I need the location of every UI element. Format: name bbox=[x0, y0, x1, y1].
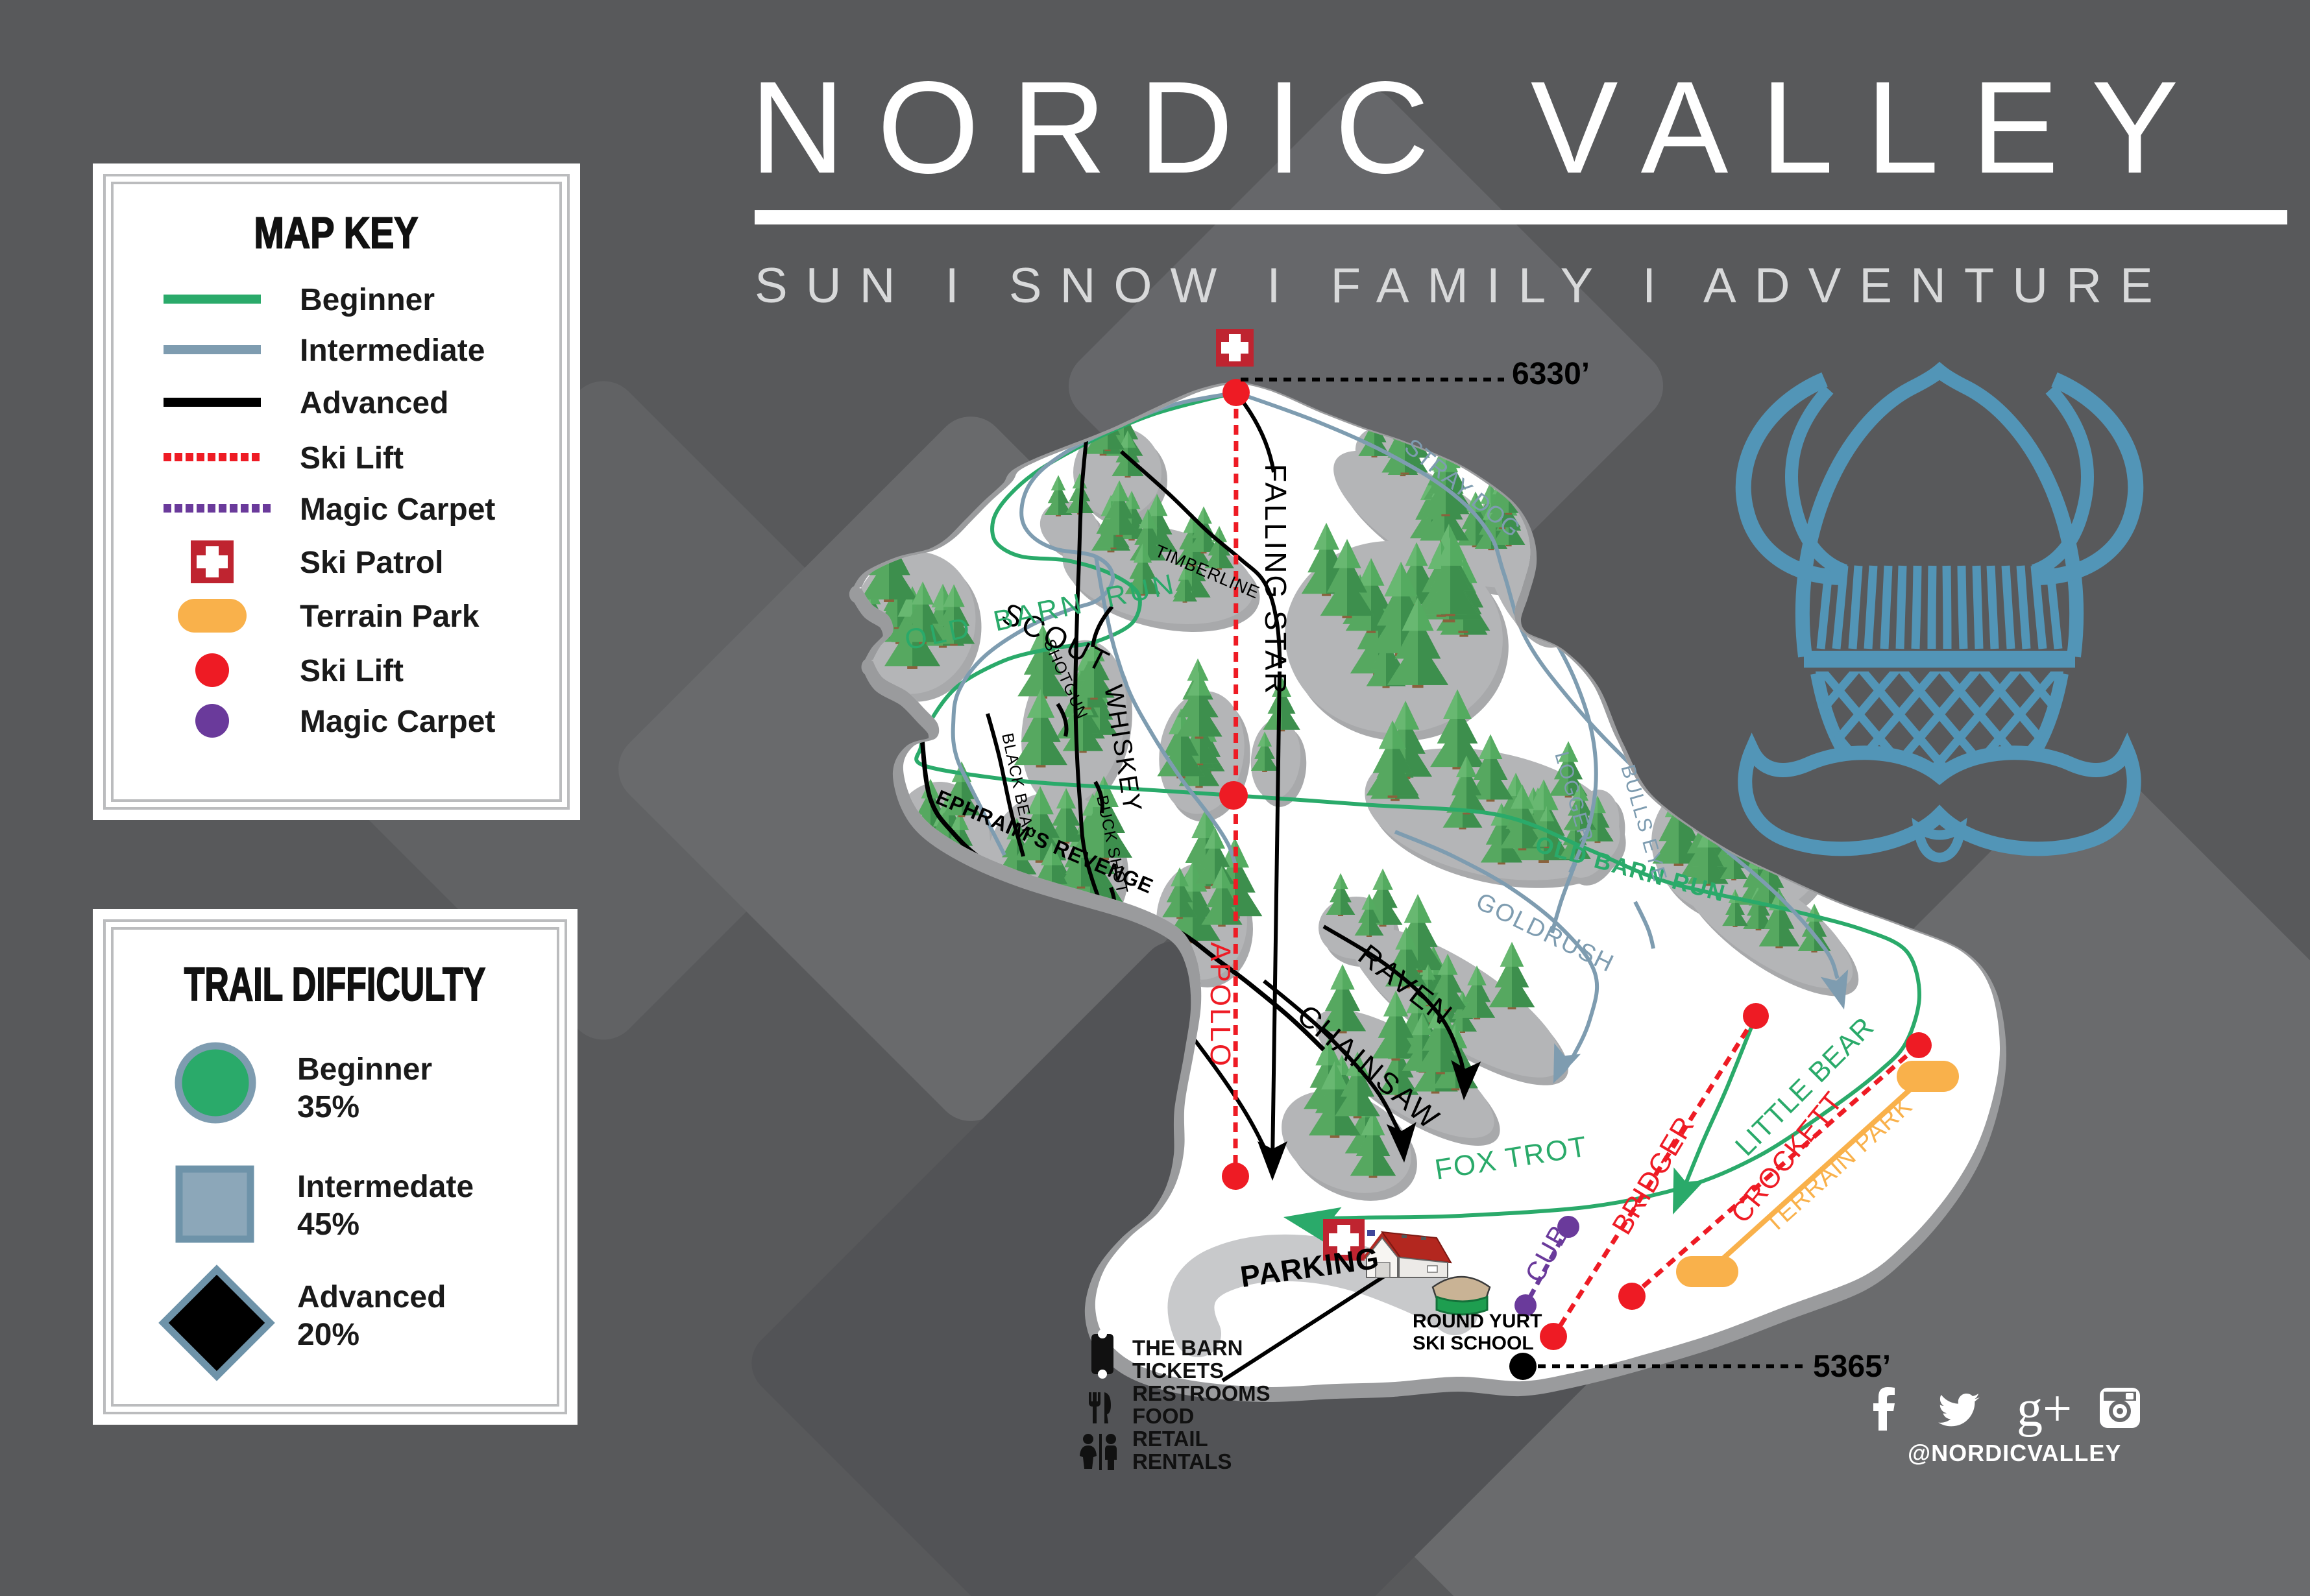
svg-text:45%: 45% bbox=[297, 1207, 359, 1242]
svg-text:6330’: 6330’ bbox=[1512, 357, 1590, 391]
svg-text:RENTALS: RENTALS bbox=[1132, 1449, 1232, 1473]
svg-text:Intermedate: Intermedate bbox=[297, 1170, 474, 1204]
svg-text:SUN I SNOW I FAMILY I AD: SUN I SNOW I FAMILY I ADVENTURE bbox=[755, 258, 2171, 313]
svg-text:5365’: 5365’ bbox=[1813, 1349, 1891, 1384]
svg-text:20%: 20% bbox=[297, 1318, 359, 1352]
svg-text:Magic Carpet: Magic Carpet bbox=[300, 492, 495, 527]
svg-text:g+: g+ bbox=[2017, 1381, 2072, 1438]
svg-text:Ski Patrol: Ski Patrol bbox=[300, 546, 443, 580]
svg-text:NORDIC VALLEY: NORDIC VALLEY bbox=[750, 54, 2211, 200]
svg-text:Ski Lift: Ski Lift bbox=[300, 441, 404, 476]
svg-text:MAP KEY: MAP KEY bbox=[254, 209, 418, 258]
svg-text:Intermediate: Intermediate bbox=[300, 333, 485, 368]
svg-text:THE BARN: THE BARN bbox=[1132, 1336, 1243, 1360]
svg-text:FOOD: FOOD bbox=[1132, 1404, 1194, 1428]
svg-text:TRAIL DIFFICULTY: TRAIL DIFFICULTY bbox=[184, 959, 485, 1011]
svg-text:FALLING STAR: FALLING STAR bbox=[1259, 464, 1293, 695]
svg-text:RETAIL: RETAIL bbox=[1132, 1427, 1208, 1451]
svg-text:Advanced: Advanced bbox=[300, 386, 448, 420]
svg-text:Beginner: Beginner bbox=[297, 1052, 432, 1087]
svg-text:SKI SCHOOL: SKI SCHOOL bbox=[1413, 1333, 1534, 1354]
svg-text:35%: 35% bbox=[297, 1090, 359, 1124]
svg-text:TICKETS: TICKETS bbox=[1132, 1359, 1224, 1383]
svg-text:Terrain Park: Terrain Park bbox=[300, 599, 480, 634]
svg-text:Beginner: Beginner bbox=[300, 283, 435, 317]
svg-text:APOLLO: APOLLO bbox=[1204, 942, 1236, 1068]
svg-text:@NORDICVALLEY: @NORDICVALLEY bbox=[1908, 1440, 2121, 1466]
svg-text:Ski Lift: Ski Lift bbox=[300, 654, 404, 688]
svg-text:Magic Carpet: Magic Carpet bbox=[300, 705, 495, 739]
svg-text:Advanced: Advanced bbox=[297, 1280, 446, 1314]
svg-text:RESTROOMS: RESTROOMS bbox=[1132, 1381, 1270, 1405]
svg-text:ROUND YURT: ROUND YURT bbox=[1413, 1311, 1542, 1332]
